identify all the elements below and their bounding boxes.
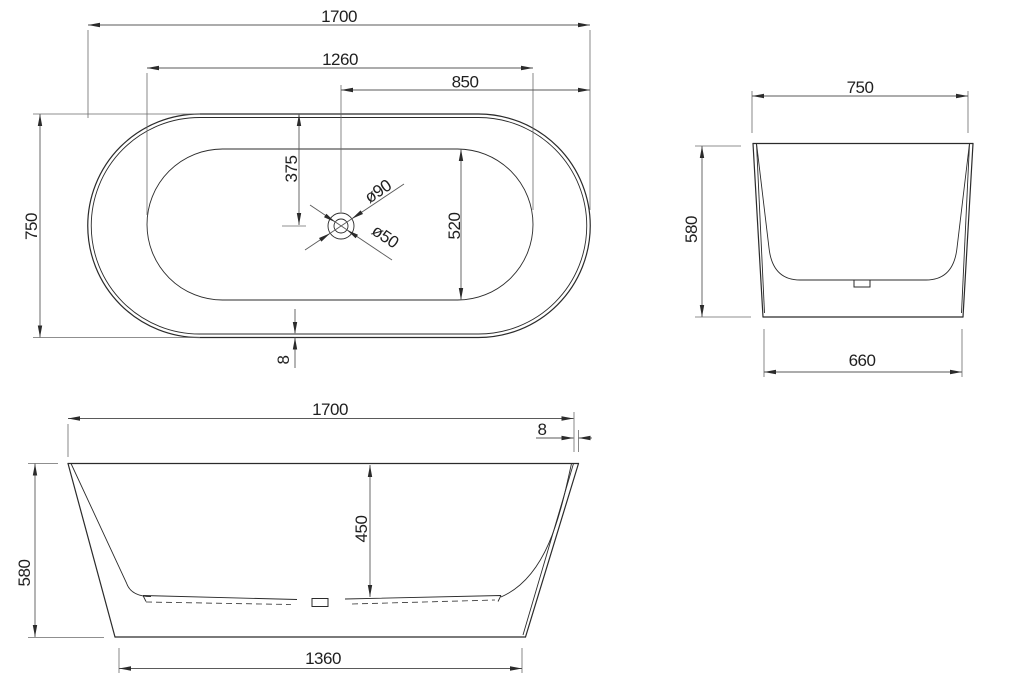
front-left-basin-wall: [71, 464, 151, 597]
plan-dim-overall-length: 1700: [321, 7, 357, 26]
side-dim-height: 580: [682, 216, 701, 243]
front-right-basin-wall: [501, 464, 572, 598]
side-dimension-lines: [702, 96, 968, 372]
plan-dim-drain-from-edge: 375: [282, 156, 301, 183]
front-arrowheads: [33, 416, 591, 670]
front-extension-lines: [28, 412, 579, 673]
plan-dim-drain-outer-dia: ø90: [361, 176, 395, 207]
plan-extension-lines: [33, 30, 590, 338]
plan-view: 1700 1260 850 750 375 520 8 ø90 ø50: [22, 7, 590, 368]
front-dim-height: 580: [15, 560, 34, 587]
front-drain: [312, 599, 328, 607]
side-basin-profile: [757, 144, 970, 281]
front-floor-left: [143, 596, 297, 602]
technical-drawing-sheet: 1700 1260 850 750 375 520 8 ø90 ø50: [0, 0, 1024, 695]
front-dim-top-length: 1700: [312, 400, 348, 419]
plan-outer-rim: [88, 114, 591, 338]
front-dim-rim-thickness: 8: [538, 420, 547, 439]
plan-basin-edge: [147, 149, 533, 300]
plan-dim-drain-offset: 850: [452, 73, 479, 92]
plan-dim-basin-length: 1260: [322, 50, 358, 69]
plan-dim-rim-thickness: 8: [274, 355, 293, 364]
side-dim-base-width: 660: [849, 351, 876, 370]
front-body-outline: [68, 464, 579, 638]
side-dim-top-width: 750: [847, 78, 874, 97]
side-view: 750 580 660: [682, 78, 973, 377]
front-dim-base-length: 1360: [305, 649, 341, 668]
side-arrowheads: [700, 94, 968, 374]
side-extension-lines: [695, 91, 968, 377]
plan-dimension-lines: [40, 25, 590, 368]
front-dimension-lines: [35, 419, 592, 669]
plan-inner-rim: [91, 118, 587, 335]
side-body-outline: [753, 144, 973, 318]
plan-dim-overall-width: 750: [22, 213, 41, 240]
front-dim-inner-depth: 450: [352, 516, 371, 543]
plan-dim-basin-width: 520: [445, 213, 464, 240]
drawing-canvas: 1700 1260 850 750 375 520 8 ø90 ø50: [0, 0, 1024, 695]
side-drain: [854, 280, 870, 287]
front-view: 1700 8 580 450 1360: [15, 400, 592, 673]
